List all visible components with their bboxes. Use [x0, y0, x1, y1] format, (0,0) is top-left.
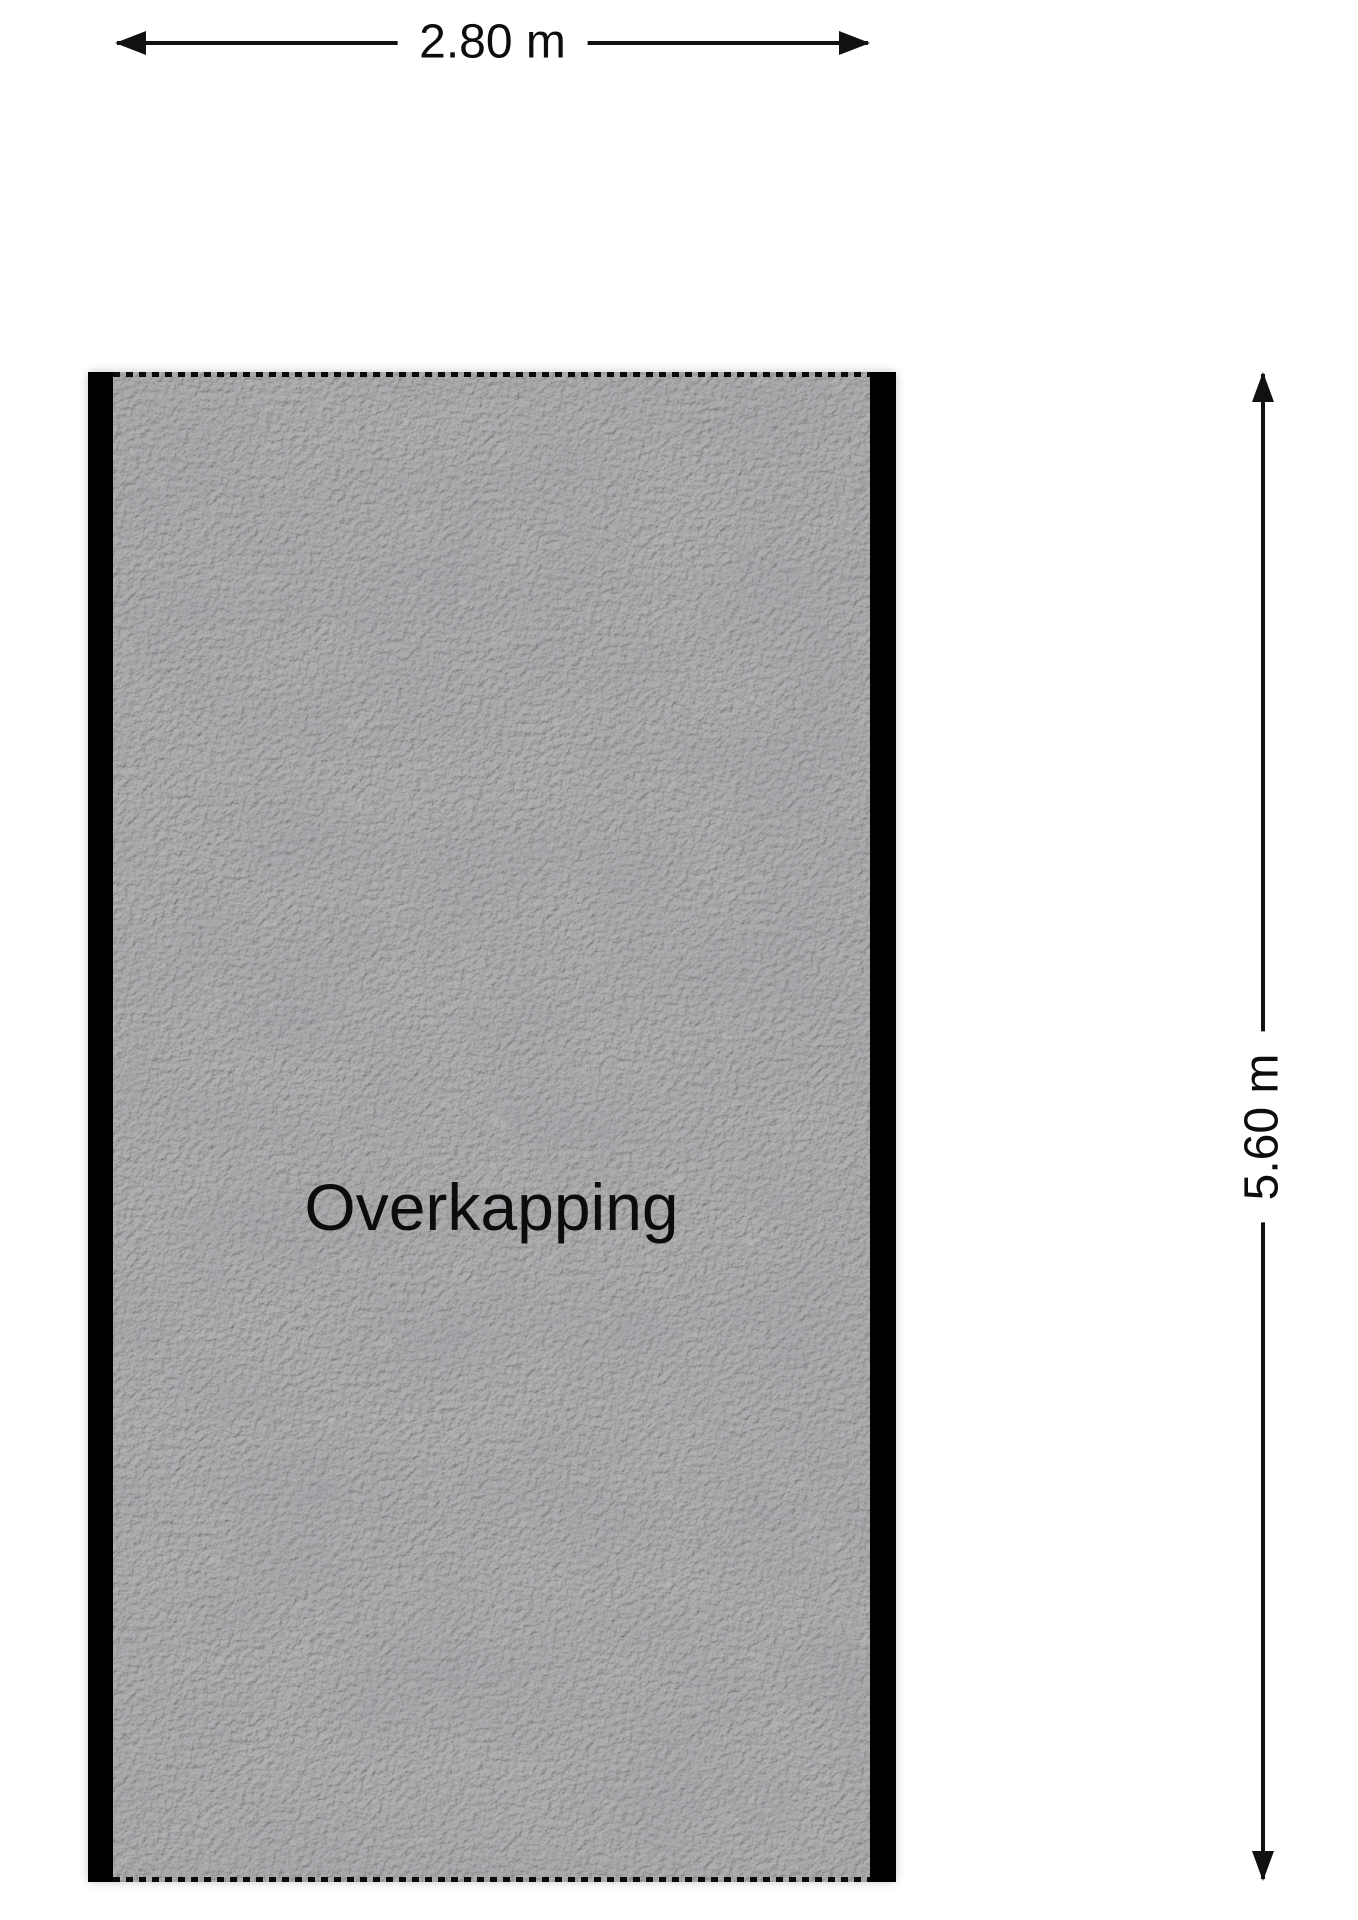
arrow-down-icon [1252, 1851, 1274, 1881]
arrow-up-icon [1252, 372, 1274, 402]
height-dimension: 5.60 m [1247, 372, 1279, 1881]
floor-plan-overkapping: Overkapping [88, 372, 896, 1882]
arrow-right-icon [839, 31, 870, 55]
floor-area: Overkapping [113, 372, 870, 1882]
width-dimension-label: 2.80 m [397, 17, 588, 70]
height-dimension-label: 5.60 m [1237, 1031, 1290, 1222]
left-wall [88, 372, 113, 1882]
width-dimension: 2.80 m [115, 21, 870, 65]
open-edge-top [113, 372, 870, 377]
right-wall [870, 372, 896, 1882]
room-label: Overkapping [304, 1169, 678, 1245]
floor-plan-page: 2.80 m [0, 0, 1358, 1920]
open-edge-bottom [113, 1877, 870, 1882]
arrow-left-icon [115, 31, 146, 55]
concrete-texture-image [113, 372, 870, 1882]
